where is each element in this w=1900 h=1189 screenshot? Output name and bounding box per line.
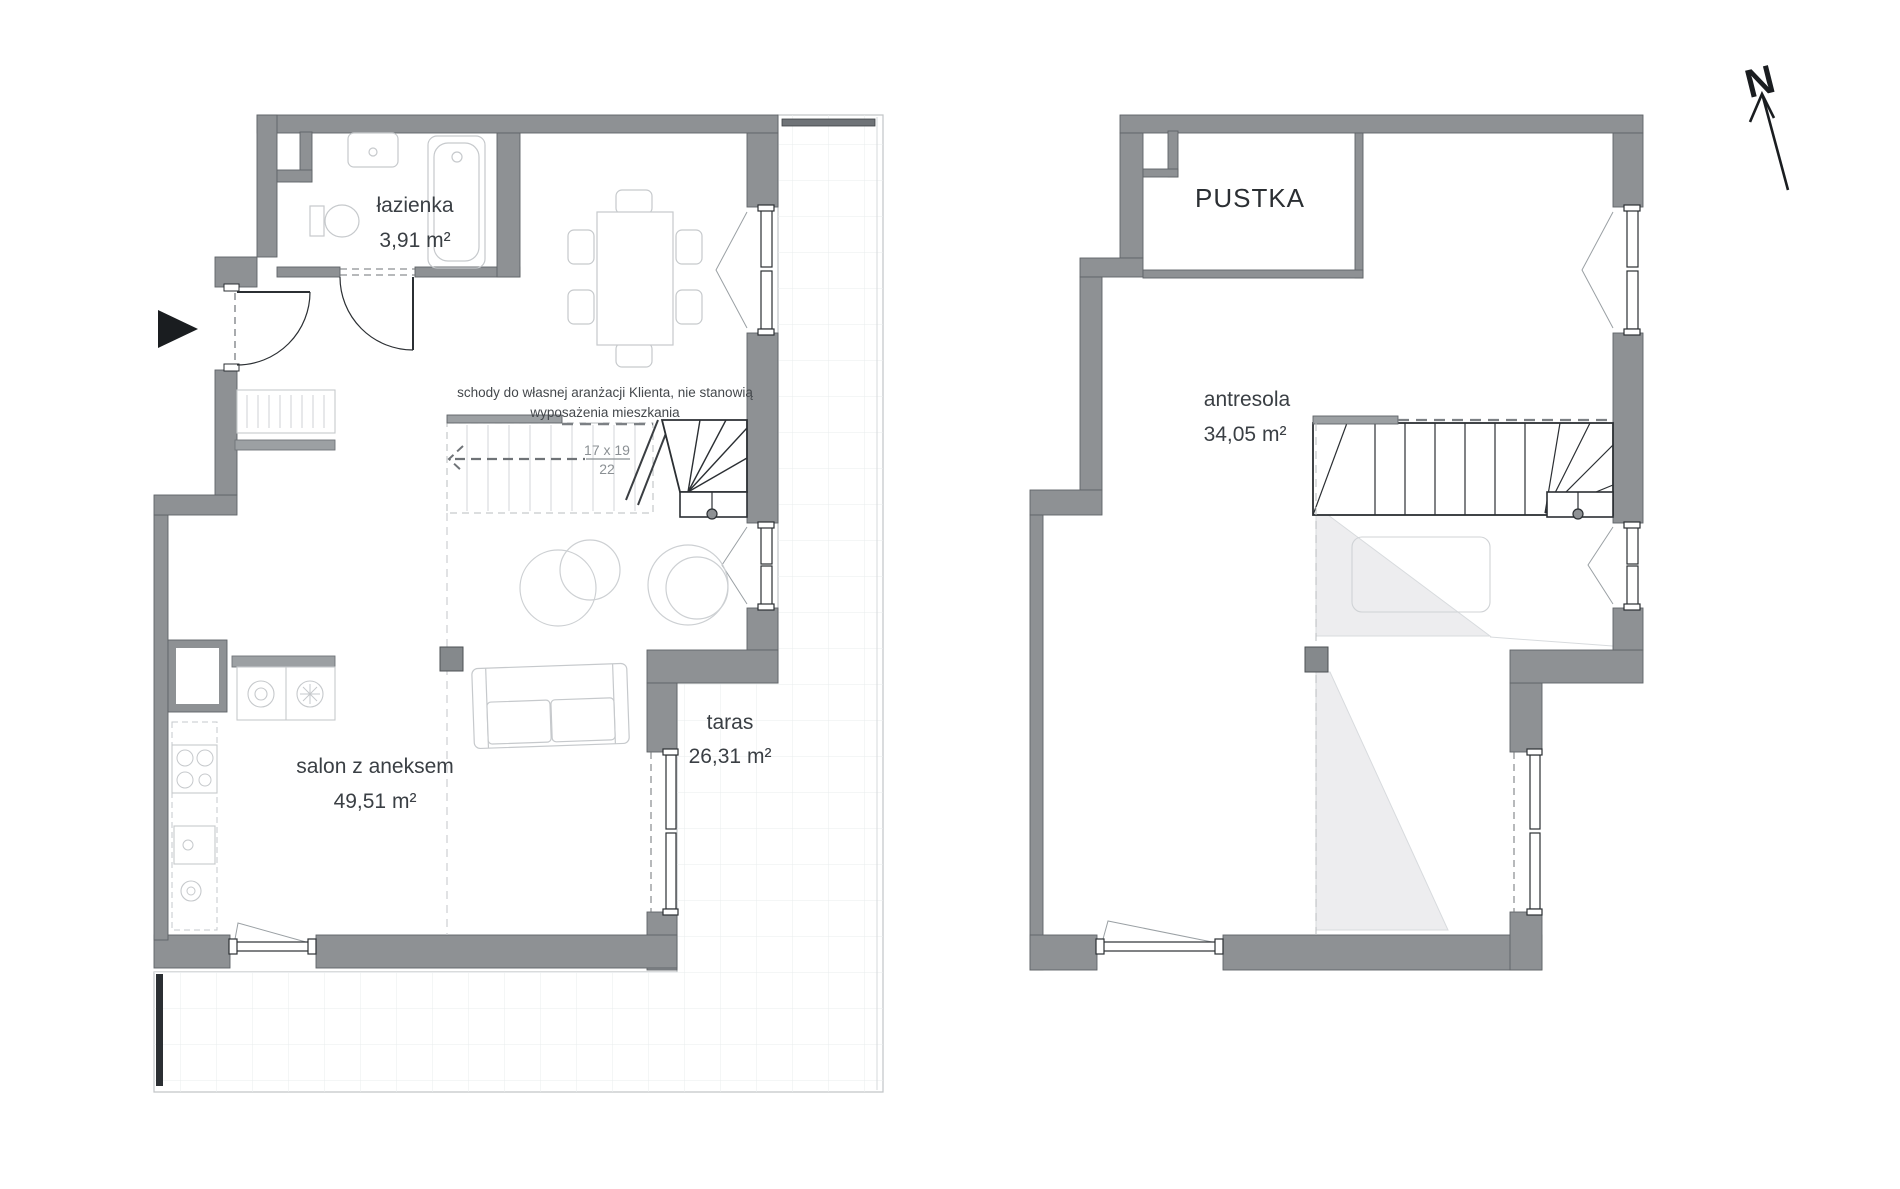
- window-right-lower-l2: [1588, 522, 1640, 610]
- column: [440, 647, 463, 671]
- salon-label: salon z aneksem: [296, 755, 454, 778]
- stair-newel-l2: [1573, 509, 1583, 519]
- washbasin: [348, 133, 398, 167]
- taras-label: taras: [707, 711, 754, 734]
- stair-newel: [707, 509, 717, 519]
- window-right-upper: [716, 205, 774, 335]
- antresola-label: antresola: [1204, 388, 1291, 411]
- wardrobe: [235, 390, 335, 450]
- terrace-railing: [782, 119, 875, 126]
- north-arrow: N: [1741, 57, 1788, 190]
- dining-set: [568, 190, 702, 367]
- lazienka-label: łazienka: [376, 194, 453, 217]
- sofa: [472, 663, 630, 748]
- floor-plan-level-2: PUSTKA antresola 34,05 m²: [1030, 115, 1643, 970]
- column-l2: [1305, 647, 1328, 672]
- entrance-door: [158, 284, 310, 371]
- void-shading: [1316, 515, 1640, 930]
- stairs-note-line1: schody do własnej aranżacji Klienta, nie…: [457, 385, 753, 400]
- antresola-area: 34,05 m²: [1204, 423, 1287, 446]
- terrace-edge-bar: [156, 974, 163, 1086]
- stair-dim-top: 17 x 19: [584, 442, 630, 458]
- window-bottom-wall: [229, 923, 316, 954]
- window-side-wall-l2: [1514, 749, 1542, 915]
- dining-table: [597, 212, 673, 345]
- oven: [174, 826, 215, 864]
- toilet: [310, 206, 324, 236]
- stair-dim-bottom: 22: [599, 461, 615, 477]
- pustka-label: PUSTKA: [1195, 183, 1305, 213]
- stairs-note-line2: wyposażenia mieszkania: [529, 405, 680, 420]
- armchairs: [520, 540, 728, 626]
- entrance-marker-icon: [158, 310, 198, 348]
- floor-plan-level-1: łazienka 3,91 m² salon z aneksem 49,51 m…: [154, 115, 883, 1092]
- bathroom-door: [340, 269, 415, 350]
- floor-plan-drawing: łazienka 3,91 m² salon z aneksem 49,51 m…: [0, 0, 1900, 1189]
- window-right-upper-l2: [1582, 205, 1640, 335]
- lazienka-area: 3,91 m²: [379, 229, 450, 252]
- kitchen: [168, 640, 335, 930]
- salon-area: 49,51 m²: [334, 790, 417, 813]
- taras-area: 26,31 m²: [689, 745, 772, 768]
- floor-plan-page: łazienka 3,91 m² salon z aneksem 49,51 m…: [0, 0, 1900, 1189]
- window-bottom-wall-l2: [1096, 921, 1223, 954]
- window-right-lower: [722, 522, 774, 610]
- window-terrace-wall: [651, 749, 678, 915]
